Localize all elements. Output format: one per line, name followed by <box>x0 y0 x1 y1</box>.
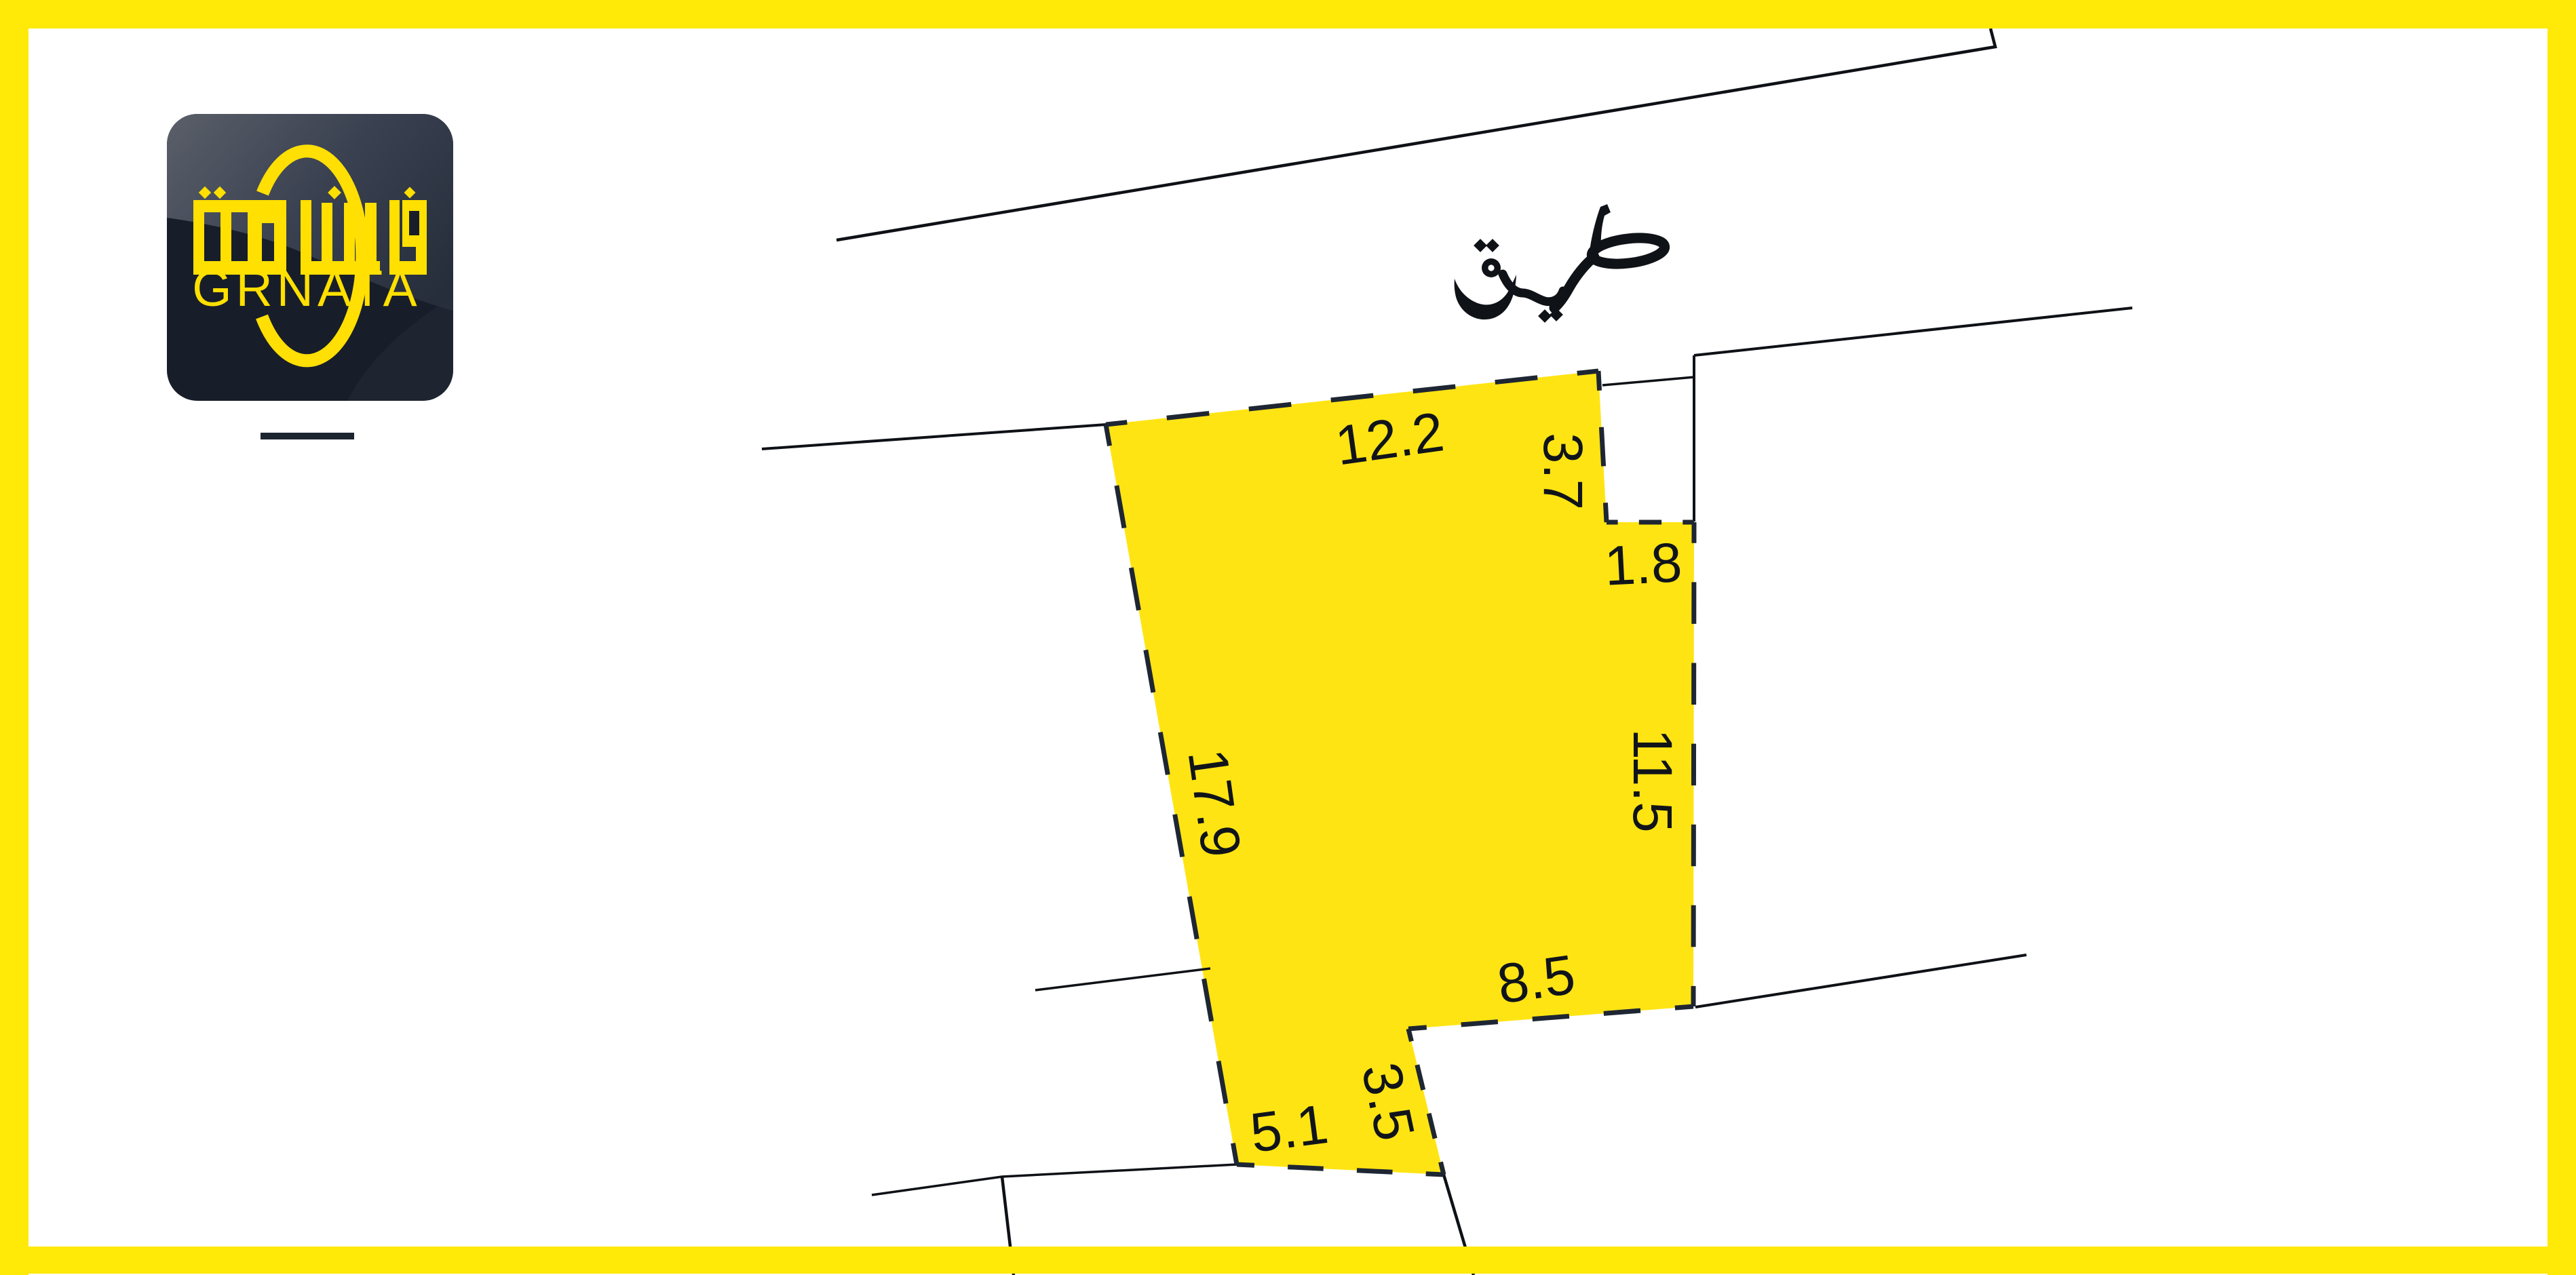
svg-text:8.5: 8.5 <box>1494 943 1579 1015</box>
svg-text:11.5: 11.5 <box>1621 728 1683 833</box>
svg-text:GRNATA: GRNATA <box>192 260 421 317</box>
svg-text:5.1: 5.1 <box>1247 1093 1332 1164</box>
svg-text:1.8: 1.8 <box>1603 532 1684 597</box>
svg-text:3.7: 3.7 <box>1532 433 1594 510</box>
